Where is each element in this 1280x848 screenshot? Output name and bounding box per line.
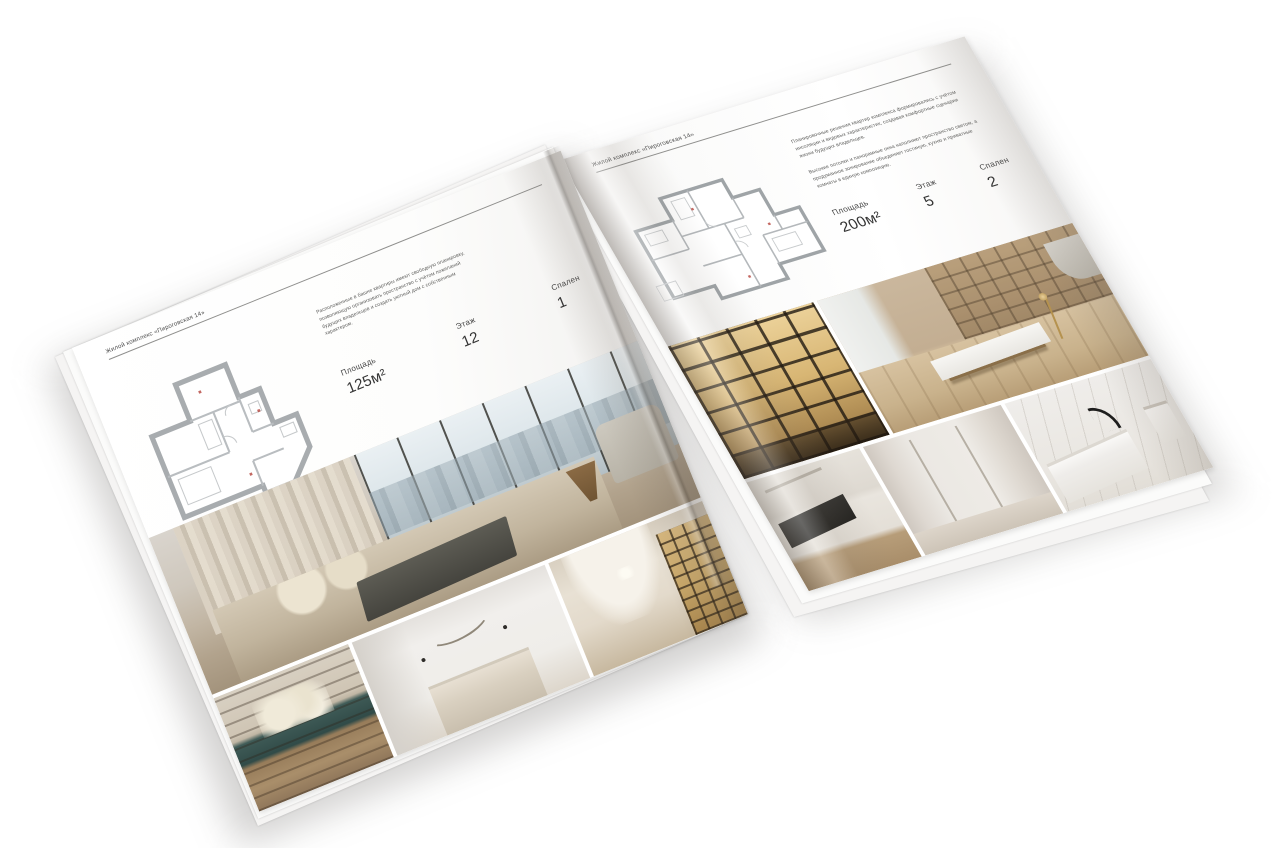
stat-bedrooms: Спален 2 (978, 155, 1022, 190)
sconce (421, 658, 426, 663)
wall-decor-branch (422, 600, 493, 654)
scene: { "left_page": { "header": "Жилой компле… (0, 0, 1280, 835)
bathroom-faucet (1087, 403, 1121, 434)
page-header-title: Жилой комплекс «Пироговская 14» (591, 132, 696, 168)
door-jamb (955, 426, 1004, 509)
stat-floor-value: 5 (921, 189, 949, 210)
kitchen-cooktop (778, 494, 857, 548)
stat-floor: Этаж 12 (454, 315, 484, 350)
stat-area: Площадь 200м² (830, 197, 885, 236)
flower-vase (250, 676, 334, 738)
stat-floor-label: Этаж (914, 178, 938, 192)
stat-floor-value: 12 (459, 327, 484, 350)
stat-area: Площадь 125м² (339, 354, 389, 397)
kitchen-hood (764, 467, 821, 493)
stat-bedrooms-value: 2 (984, 167, 1021, 191)
door-jamb (908, 440, 957, 523)
stat-bedrooms: Спален 1 (550, 273, 589, 312)
stat-floor: Этаж 5 (914, 178, 949, 211)
sconce (502, 625, 507, 630)
